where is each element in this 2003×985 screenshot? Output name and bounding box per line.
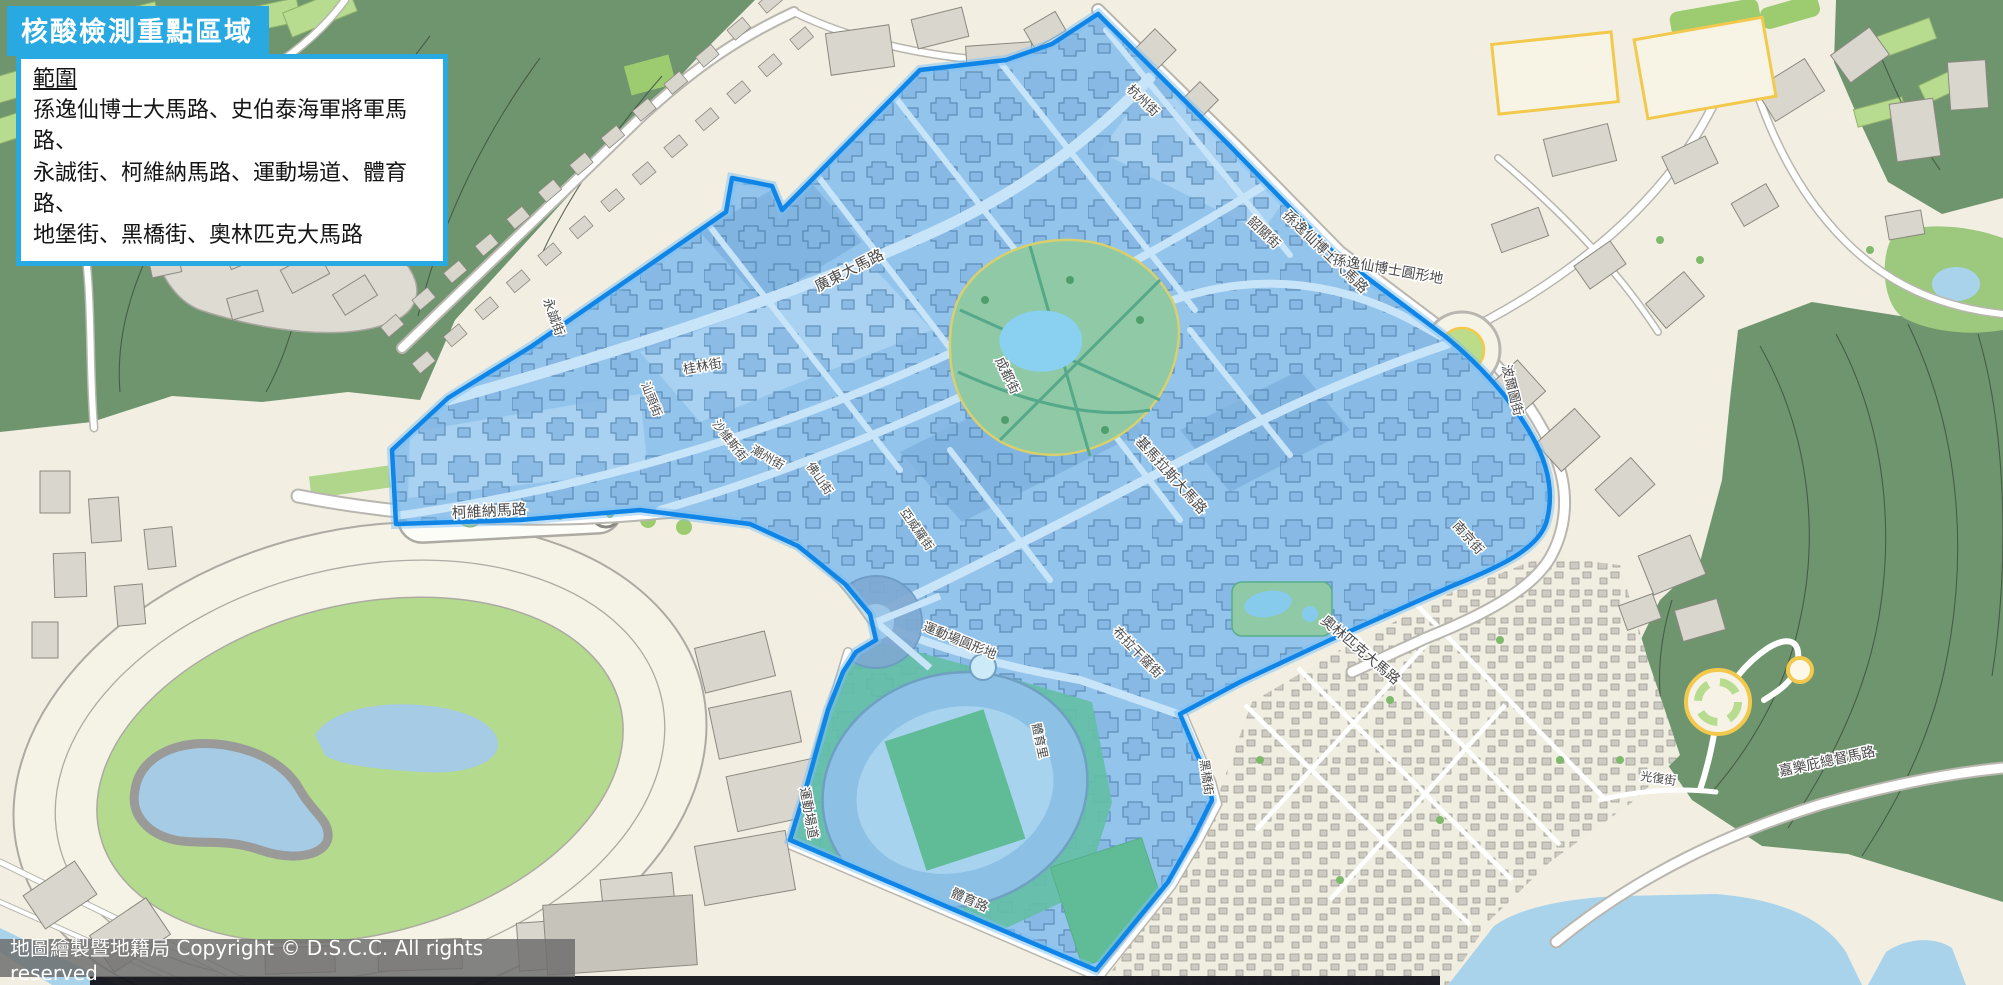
- building: [40, 471, 70, 513]
- campus-block: [1492, 32, 1619, 114]
- building: [144, 527, 176, 570]
- page-title: 核酸檢測重點區域: [7, 6, 269, 56]
- building: [825, 25, 894, 75]
- screenshot-stage: 永誠街柯維納馬路廣東大馬路桂林街汕頭街沙維斯街成都街潮州街佛山街亞威羅街基馬拉斯…: [0, 0, 2003, 985]
- building: [1889, 98, 1941, 162]
- scope-line-2: 永誠街、柯維納馬路、運動場道、體育路、: [33, 158, 431, 220]
- building: [32, 622, 58, 658]
- building: [53, 552, 87, 597]
- building: [89, 497, 122, 543]
- pool-park: [1232, 582, 1332, 636]
- scope-info-box: 範圍 孫逸仙博士大馬路、史伯泰海軍將軍馬路、 永誠街、柯維納馬路、運動場道、體育…: [16, 54, 448, 266]
- building: [114, 584, 145, 626]
- scope-line-3: 地堡街、黑橋街、奧林匹克大馬路: [33, 220, 431, 251]
- scope-heading: 範圍: [33, 64, 431, 95]
- building: [1947, 60, 1988, 111]
- scope-line-1: 孫逸仙博士大馬路、史伯泰海軍將軍馬路、: [33, 95, 431, 157]
- copyright-footer: 地圖繪製暨地籍局 Copyright © D.S.C.C. All rights…: [0, 939, 575, 977]
